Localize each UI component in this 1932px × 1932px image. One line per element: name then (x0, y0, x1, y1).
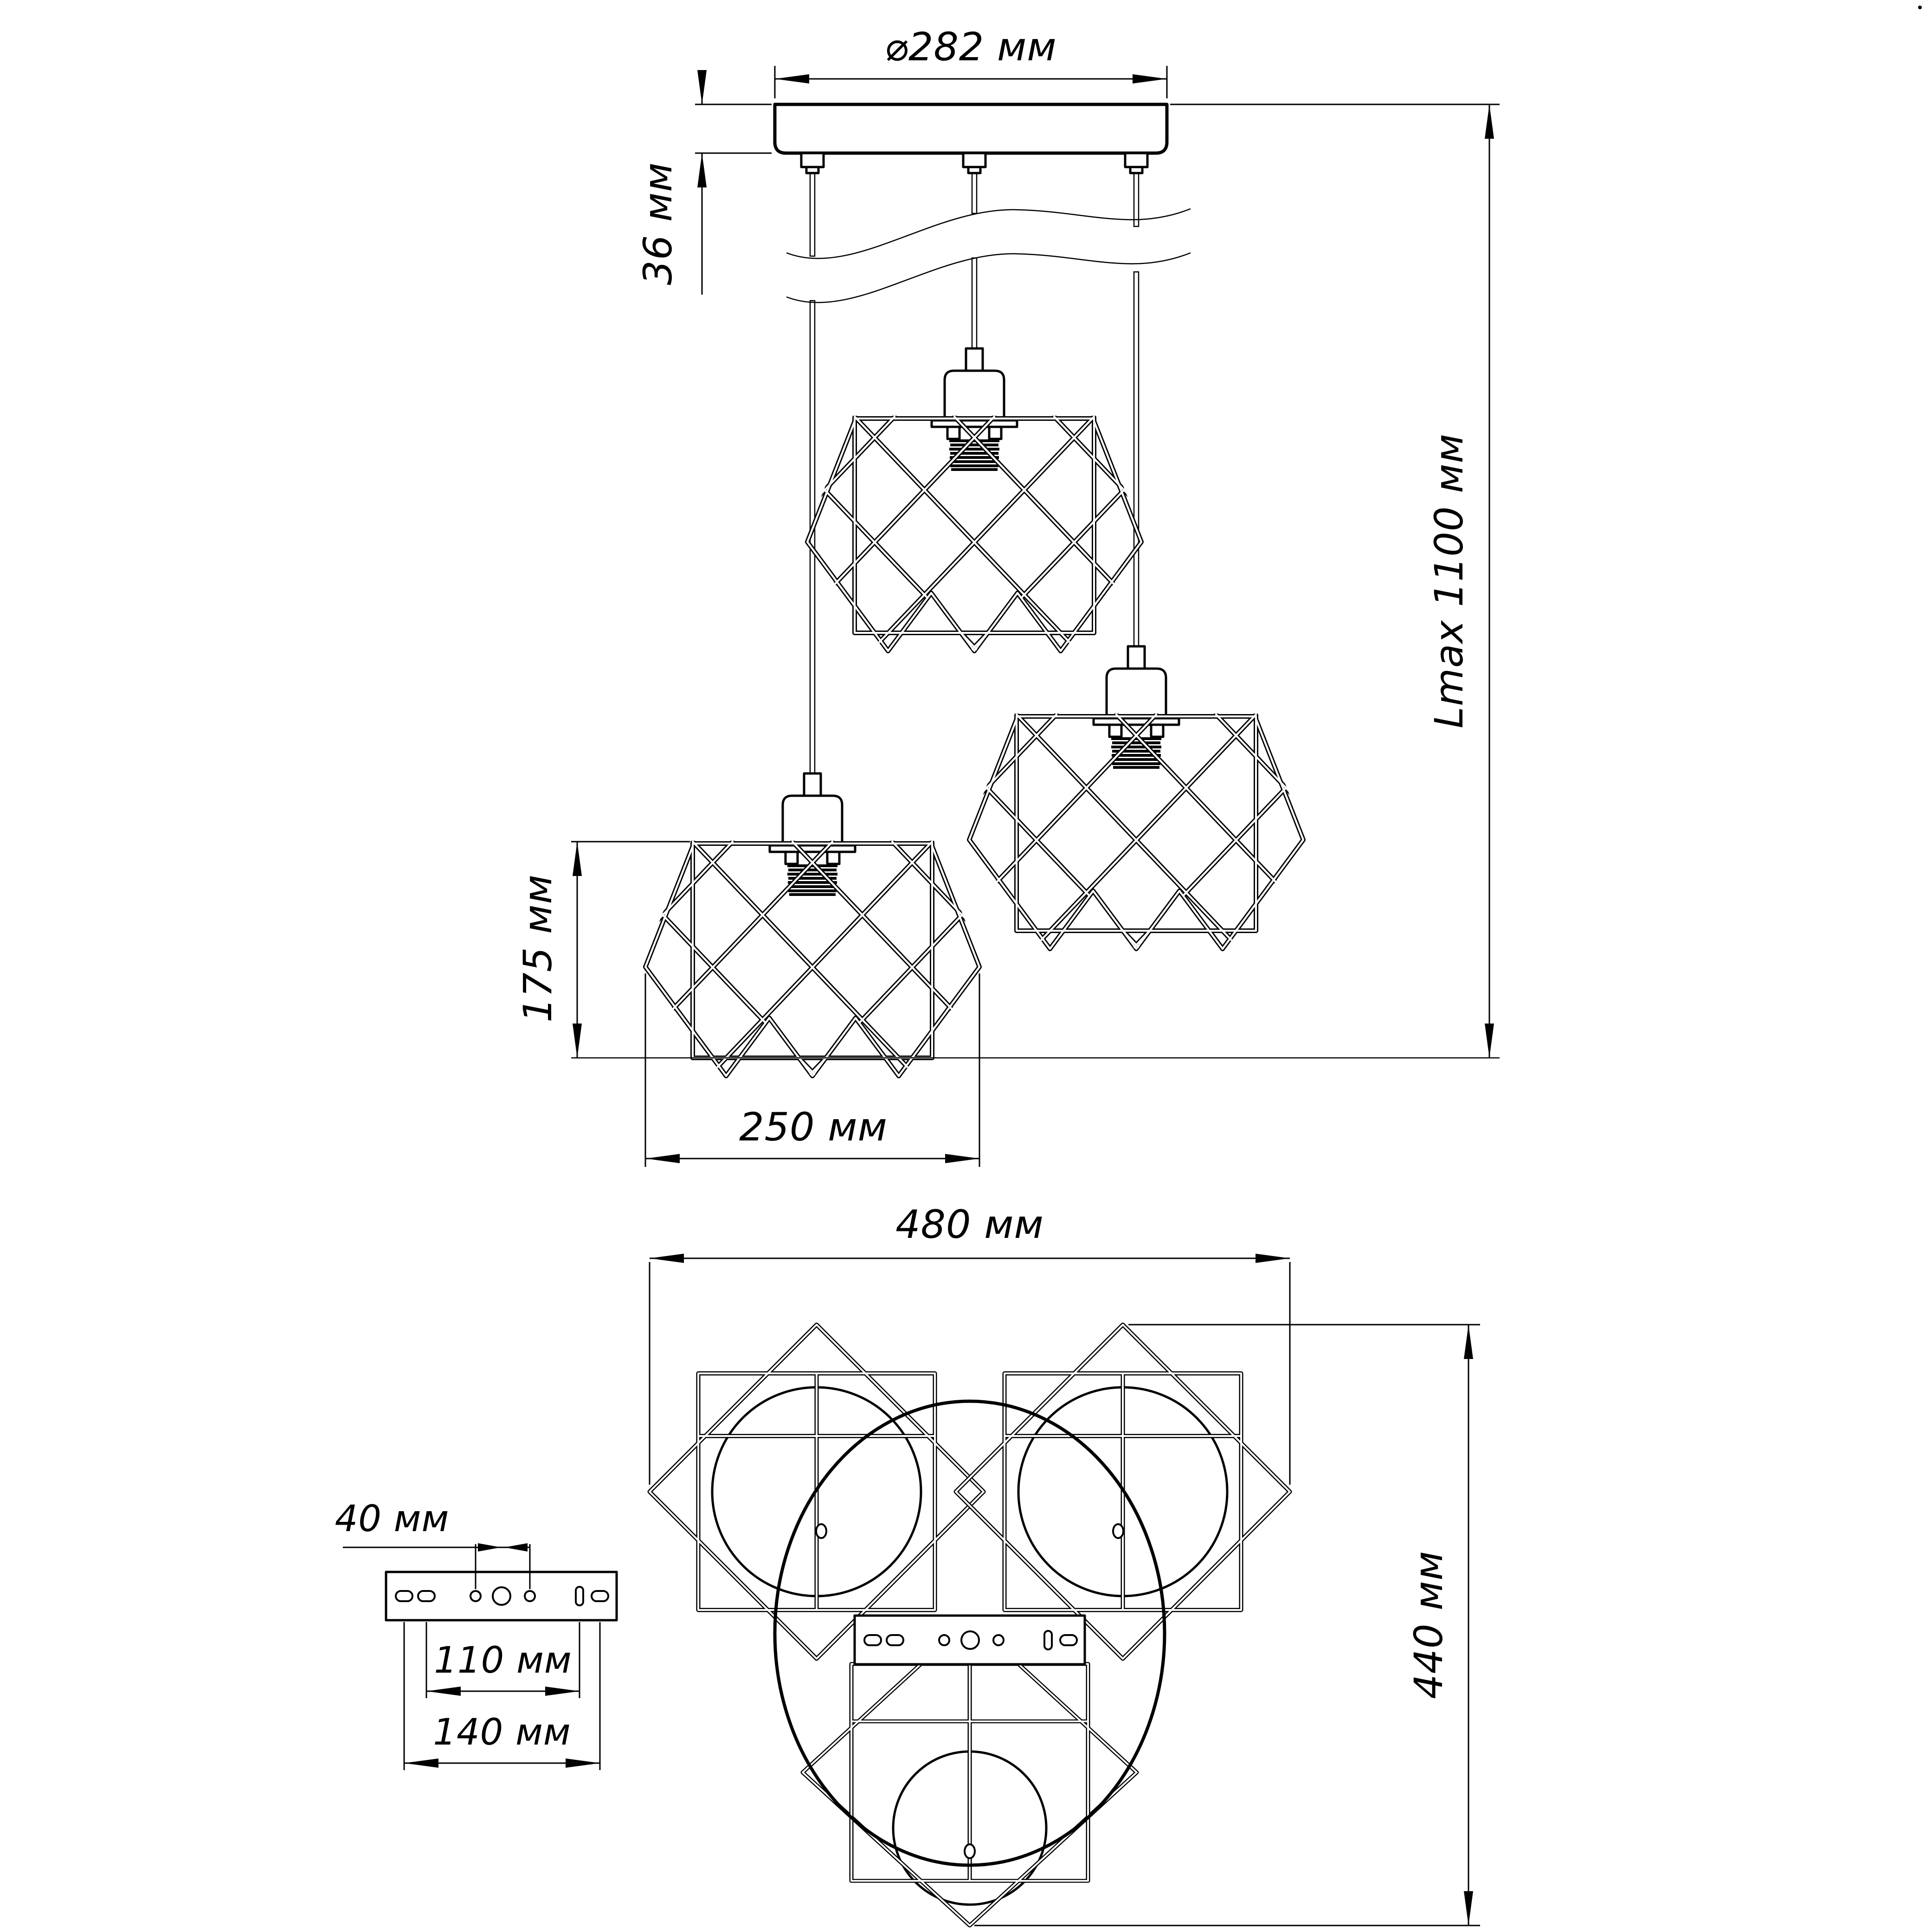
canopy-mounting-bracket (855, 1616, 1085, 1664)
label-shade-width: 250 мм (739, 1104, 888, 1150)
cable-break-waves (786, 209, 1191, 303)
lamp-socket (932, 348, 1017, 470)
pendant-lamp-top (653, 348, 1295, 670)
pendant-cables (810, 172, 1139, 773)
dimension-bracket-110: 110 мм (426, 1622, 580, 1698)
bracket-detail: 40 мм 110 мм 140 мм (335, 1498, 617, 1770)
label-bracket-110: 110 мм (434, 1640, 572, 1681)
label-plan-depth: 440 мм (1406, 1551, 1451, 1699)
dimension-canopy-diameter: ⌀282 мм (775, 24, 1167, 98)
pendant-lamp-right (815, 646, 1457, 968)
label-canopy-height: 36 мм (635, 162, 681, 285)
dimension-canopy-height: 36 мм (635, 70, 772, 295)
label-shade-height: 175 мм (515, 874, 560, 1023)
label-bracket-40: 40 мм (335, 1498, 450, 1540)
label-plan-width: 480 мм (895, 1202, 1044, 1247)
pendant-lamp-dimension-drawing: ⌀282 мм 36 мм Lmax 1100 мм 175 мм (0, 0, 1932, 1932)
dimension-plan-width: 480 мм (650, 1202, 1290, 1485)
cord-grips (801, 153, 1147, 173)
lamp-socket (770, 773, 855, 895)
ceiling-canopy (775, 104, 1167, 173)
dimension-shade-height: 175 мм (515, 842, 690, 1058)
technical-drawing-sheet: ⌀282 мм 36 мм Lmax 1100 мм 175 мм (0, 0, 1932, 1932)
label-canopy-diameter: ⌀282 мм (884, 24, 1056, 70)
lamp-socket (1094, 646, 1179, 767)
label-bracket-140: 140 мм (433, 1712, 571, 1753)
stray-mark (1918, 6, 1922, 9)
plan-view: 480 мм 440 мм (650, 1202, 1480, 1926)
label-max-length: Lmax 1100 мм (1426, 433, 1472, 728)
front-view: ⌀282 мм 36 мм Lmax 1100 мм 175 мм (491, 24, 1500, 1167)
